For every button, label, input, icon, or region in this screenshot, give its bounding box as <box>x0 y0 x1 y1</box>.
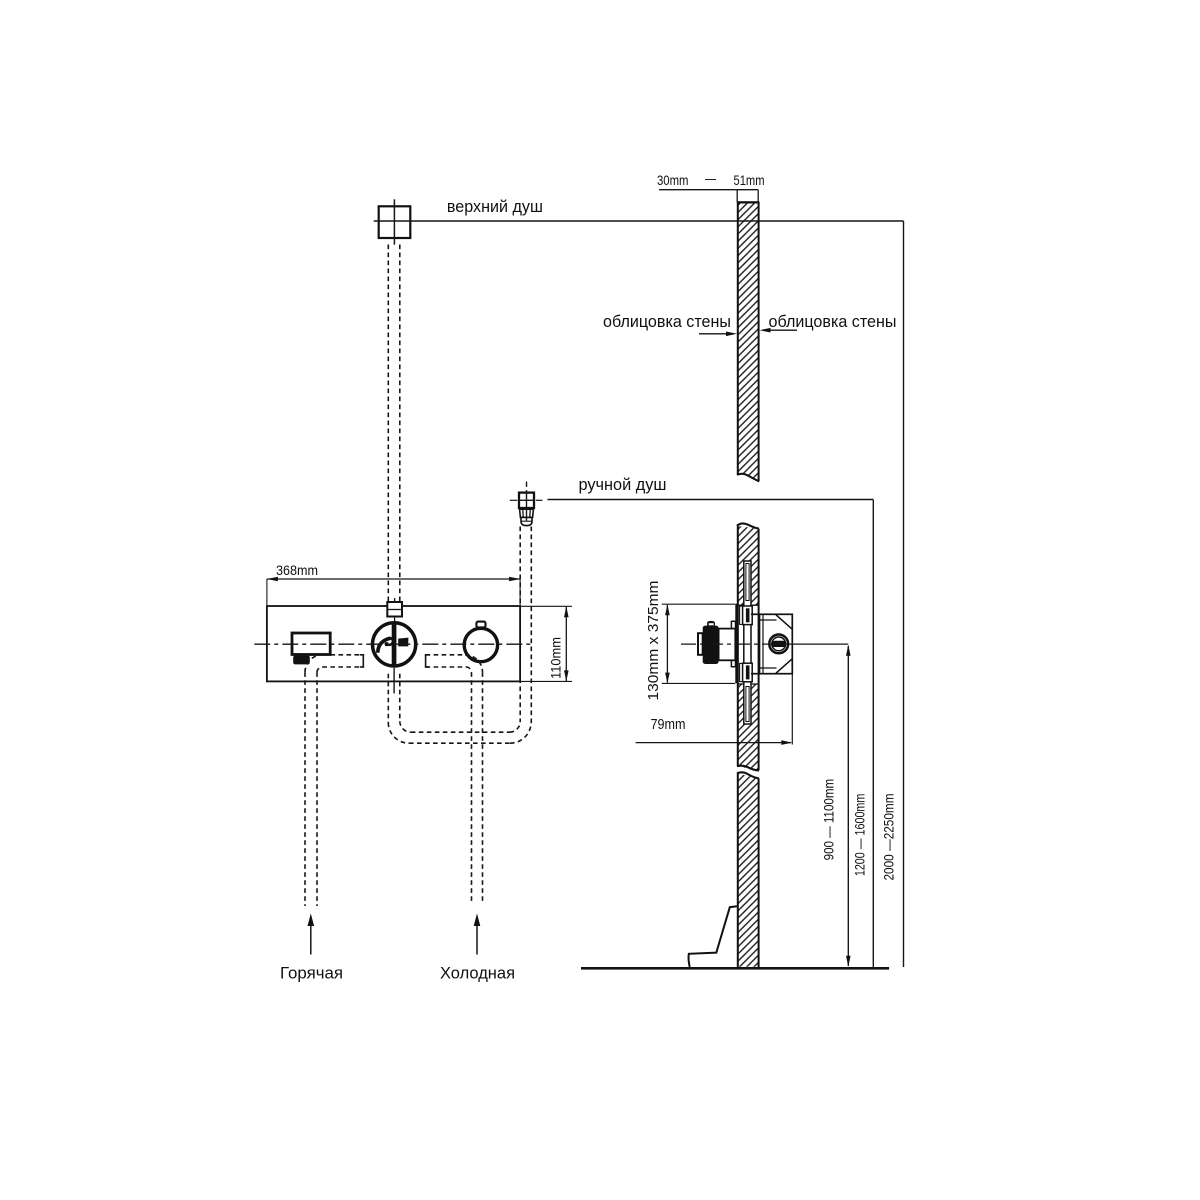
svg-text:верхний душ: верхний душ <box>447 198 543 216</box>
svg-text:облицовка стены: облицовка стены <box>603 313 731 331</box>
svg-text:1200 — 1600mm: 1200 — 1600mm <box>852 794 868 877</box>
svg-text:79mm: 79mm <box>651 717 686 733</box>
svg-text:30mm: 30mm <box>657 172 689 188</box>
svg-text:110mm: 110mm <box>548 637 564 679</box>
svg-text:900 — 1100mm: 900 — 1100mm <box>821 779 837 861</box>
svg-text:ручной душ: ручной душ <box>579 476 667 494</box>
svg-text:51mm: 51mm <box>734 172 765 188</box>
svg-text:Холодная: Холодная <box>440 965 515 983</box>
svg-text:368mm: 368mm <box>276 562 318 578</box>
svg-text:130mm x 375mm: 130mm x 375mm <box>646 581 662 701</box>
svg-text:облицовка стены: облицовка стены <box>769 313 897 331</box>
svg-text:—: — <box>705 170 716 186</box>
svg-text:Горячая: Горячая <box>280 965 343 983</box>
svg-text:2000 —2250mm: 2000 —2250mm <box>881 794 897 881</box>
